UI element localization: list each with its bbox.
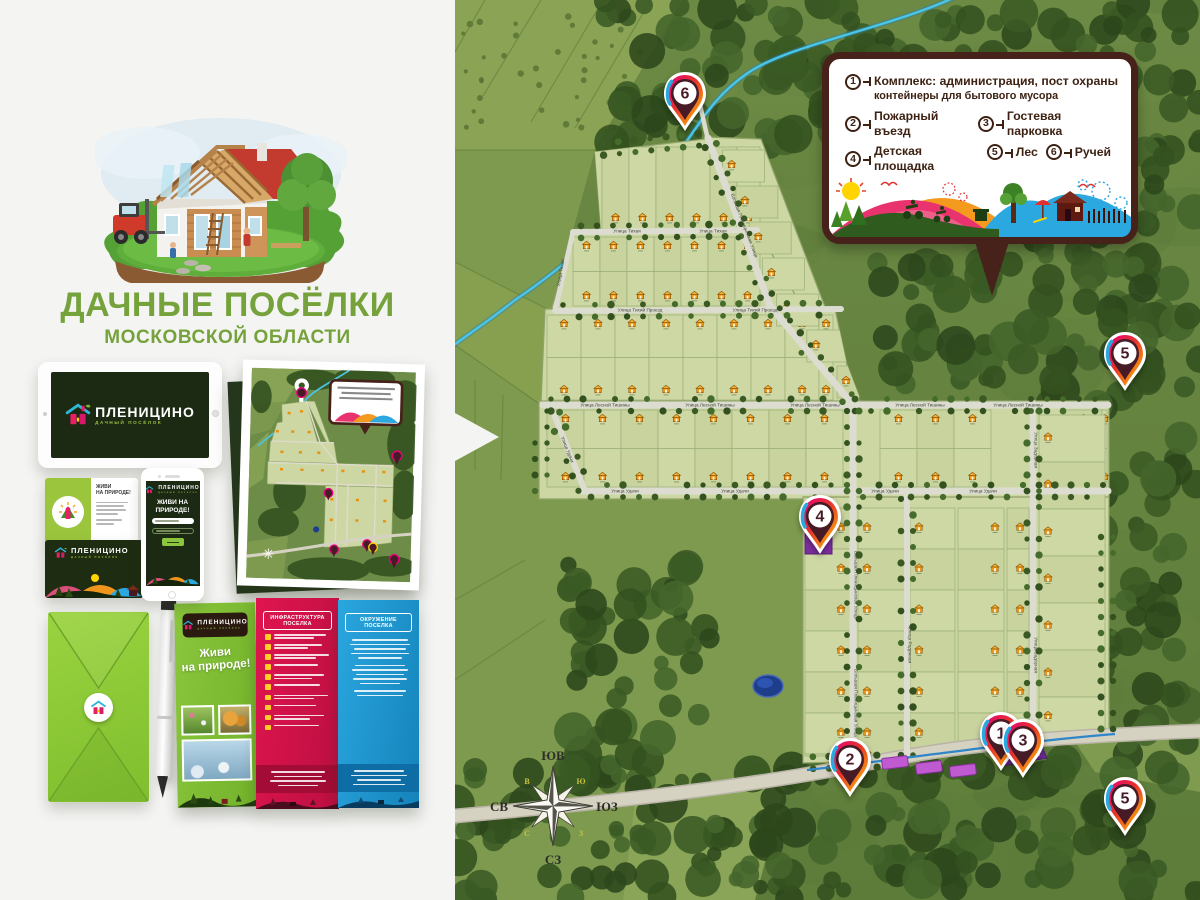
map-pin-5[interactable]: 5 bbox=[1102, 331, 1148, 393]
phone-submit-button bbox=[162, 538, 184, 546]
environment-footer bbox=[338, 764, 419, 792]
environment-title: ОКРУЖЕНИЕ ПОСЕЛКА bbox=[345, 613, 412, 632]
legend-label-6: Ручей bbox=[1075, 145, 1111, 160]
legend-connector-icon bbox=[996, 119, 1004, 130]
svg-text:Улица Задорная: Улица Задорная bbox=[1034, 432, 1039, 468]
legend-num-6: 6 bbox=[1046, 144, 1062, 160]
svg-text:ЮВ: ЮВ bbox=[541, 748, 565, 763]
pond-highlight bbox=[757, 678, 773, 688]
tablet-screen: ПЛЕНИЦИНО ДАЧНЫЙ ПОСЁЛОК bbox=[51, 372, 209, 458]
environment-text bbox=[348, 636, 411, 696]
brochure-landscape-art bbox=[338, 792, 419, 808]
pen-mockup bbox=[155, 608, 176, 778]
map-pin-6[interactable]: 6 bbox=[662, 71, 708, 133]
brochure-photo-forest bbox=[182, 738, 253, 781]
tablet-home-button bbox=[212, 410, 219, 417]
business-card-front: ЖИВИ НА ПРИРОДЕ! bbox=[45, 478, 138, 545]
legend-connector-icon bbox=[863, 155, 871, 166]
infrastructure-footer bbox=[256, 765, 339, 793]
phone-email-field bbox=[152, 518, 194, 525]
map-pin-4[interactable]: 4 bbox=[797, 494, 843, 556]
phone-slogan: ЖИВИ НА ПРИРОДЕ! bbox=[155, 499, 189, 515]
svg-text:2: 2 bbox=[846, 752, 855, 769]
legend-connector-icon bbox=[863, 119, 871, 130]
brand-house-icon bbox=[54, 547, 67, 559]
brochure-cover-panel: ПЛЕНИЦИНО ДАЧНЫЙ ПОСЁЛОК Живи на природе… bbox=[174, 602, 259, 807]
svg-text:Улица Лесной Тишины: Улица Лесной Тишины bbox=[993, 402, 1043, 408]
svg-text:С: С bbox=[524, 829, 530, 838]
brand-house-icon bbox=[90, 700, 107, 716]
title-line1: ДАЧНЫЕ ПОСЁЛКИ bbox=[0, 288, 455, 324]
house-construction-illustration bbox=[95, 103, 347, 291]
legend-label-1b: контейнеры для бытового мусора bbox=[874, 90, 1118, 103]
panel-arrow-notch bbox=[455, 413, 499, 461]
legend-num-2: 2 bbox=[845, 116, 861, 132]
infrastructure-list bbox=[265, 634, 332, 735]
phone-home-button bbox=[168, 591, 176, 599]
card-landscape-art bbox=[45, 568, 143, 598]
branding-panel: ДАЧНЫЕ ПОСЁЛКИ МОСКОВСКОЙ ОБЛАСТИ bbox=[0, 0, 455, 900]
card-green-half bbox=[45, 478, 91, 545]
svg-text:Улица Лесной Тишины: Улица Лесной Тишины bbox=[580, 402, 630, 408]
map-pin-5[interactable]: 5 bbox=[1102, 776, 1148, 838]
brochure-photo-mushrooms bbox=[218, 704, 252, 735]
legend-label-5: Лес bbox=[1016, 145, 1038, 160]
brand-house-icon bbox=[65, 403, 91, 427]
poster-mini-map bbox=[245, 368, 417, 583]
envelope-mockup bbox=[48, 612, 149, 802]
brand-logo-phone: ПЛЕНИЦИНО ДАЧНЫЙ ПОСЁЛОК bbox=[146, 486, 200, 495]
brochure-photo-meadow bbox=[181, 705, 215, 736]
svg-text:Улица Удачи: Улица Удачи bbox=[871, 489, 899, 494]
svg-text:Улица Лесной Тишины: Улица Лесной Тишины bbox=[685, 402, 735, 408]
svg-text:Большая Пленицынская Улица: Большая Пленицынская Улица bbox=[854, 551, 859, 619]
masterplan-poster bbox=[237, 360, 425, 591]
svg-text:В: В bbox=[524, 777, 530, 786]
svg-text:4: 4 bbox=[816, 509, 825, 526]
map-legend: 1 Комплекс: администрация, пост охраны к… bbox=[822, 52, 1138, 244]
title-line2: МОСКОВСКОЙ ОБЛАСТИ bbox=[0, 327, 455, 349]
envelope-sticker bbox=[84, 693, 113, 722]
svg-text:Улица Тихий Проезд: Улица Тихий Проезд bbox=[733, 307, 778, 313]
infrastructure-title: ИНФРАСТРУКТУРА ПОСЕЛКА bbox=[263, 611, 332, 630]
map-pin-2[interactable]: 2 bbox=[827, 737, 873, 799]
tablet-camera-icon bbox=[43, 412, 47, 416]
legend-num-4: 4 bbox=[845, 151, 861, 167]
card-emblem bbox=[52, 496, 84, 528]
tree-sun-icon bbox=[56, 500, 80, 524]
legend-label-4: Детская площадка bbox=[874, 144, 979, 175]
svg-text:Улица Лесной Тишины: Улица Лесной Тишины bbox=[895, 402, 945, 408]
legend-num-3: 3 bbox=[978, 116, 994, 132]
page-title: ДАЧНЫЕ ПОСЁЛКИ МОСКОВСКОЙ ОБЛАСТИ bbox=[0, 288, 455, 349]
phone-password-field bbox=[152, 528, 194, 535]
svg-text:СВ: СВ bbox=[490, 799, 508, 814]
legend-connector-icon bbox=[863, 76, 871, 87]
phone-speaker bbox=[165, 475, 180, 478]
card-info: ЖИВИ НА ПРИРОДЕ! bbox=[91, 478, 138, 545]
tablet-mockup: ПЛЕНИЦИНО ДАЧНЫЙ ПОСЁЛОК bbox=[38, 362, 222, 468]
brand-logo-small: ПЛЕНИЦИНО ДАЧНЫЙ ПОСЁЛОК bbox=[54, 547, 129, 559]
map-pin-3[interactable]: 3 bbox=[1000, 718, 1046, 780]
logo-tagline: ДАЧНЫЙ ПОСЁЛОК bbox=[95, 421, 195, 426]
brochure-slogan: Живи на природе! bbox=[174, 644, 257, 676]
brand-logo: ПЛЕНИЦИНО ДАЧНЫЙ ПОСЁЛОК bbox=[65, 403, 195, 427]
svg-text:Улица Тихая: Улица Тихая bbox=[613, 229, 641, 234]
svg-text:6: 6 bbox=[681, 86, 690, 103]
brochure-infrastructure-panel: ИНФРАСТРУКТУРА ПОСЕЛКА bbox=[256, 598, 339, 809]
phone-camera-icon bbox=[158, 475, 161, 478]
business-card-back: ПЛЕНИЦИНО ДАЧНЫЙ ПОСЁЛОК bbox=[45, 540, 143, 598]
legend-label-3: Гостевая парковка bbox=[1007, 109, 1111, 140]
brochure-mockup: ПЛЕНИЦИНО ДАЧНЫЙ ПОСЁЛОК Живи на природе… bbox=[176, 598, 421, 814]
brochure-logo-badge: ПЛЕНИЦИНО ДАЧНЫЙ ПОСЁЛОК bbox=[182, 612, 247, 637]
svg-text:З: З bbox=[579, 829, 583, 838]
legend-illustration bbox=[829, 177, 1131, 237]
legend-connector-icon bbox=[1064, 148, 1072, 159]
brand-house-icon bbox=[146, 486, 155, 494]
brand-house-icon bbox=[182, 620, 193, 630]
svg-text:5: 5 bbox=[1121, 346, 1130, 363]
legend-label-1: Комплекс: администрация, пост охраны bbox=[874, 74, 1118, 89]
legend-num-1: 1 bbox=[845, 74, 861, 90]
phone-mockup: ПЛЕНИЦИНО ДАЧНЫЙ ПОСЁЛОК ЖИВИ НА ПРИРОДЕ… bbox=[141, 468, 204, 601]
svg-text:Улица Удачи: Улица Удачи bbox=[611, 489, 639, 494]
svg-text:Ю: Ю bbox=[576, 777, 585, 786]
svg-text:Улица Лесной Тишины: Улица Лесной Тишины bbox=[790, 402, 840, 408]
masterplan-map: Улица Лесной ТишиныУлица Лесной ТишиныУл… bbox=[455, 0, 1200, 900]
brochure-landscape-art bbox=[256, 793, 339, 809]
svg-text:Улица Тихий Проезд: Улица Тихий Проезд bbox=[618, 307, 663, 313]
legend-label-2: Пожарный въезд bbox=[874, 109, 970, 140]
phone-landscape-art bbox=[146, 564, 200, 586]
card-headline-2: НА ПРИРОДЕ! bbox=[96, 490, 133, 496]
svg-text:Большая Пленицынская Улица: Большая Пленицынская Улица bbox=[854, 669, 859, 737]
page: ДАЧНЫЕ ПОСЁЛКИ МОСКОВСКОЙ ОБЛАСТИ bbox=[0, 0, 1200, 900]
brochure-environment-panel: ОКРУЖЕНИЕ ПОСЕЛКА bbox=[338, 600, 419, 808]
phone-screen: ПЛЕНИЦИНО ДАЧНЫЙ ПОСЁЛОК ЖИВИ НА ПРИРОДЕ… bbox=[146, 481, 200, 586]
svg-text:СЗ: СЗ bbox=[545, 852, 561, 867]
legend-num-5: 5 bbox=[987, 144, 1003, 160]
svg-text:Улица Радужная: Улица Радужная bbox=[908, 627, 913, 664]
svg-text:5: 5 bbox=[1121, 791, 1130, 808]
svg-text:Улица Задорная: Улица Задорная bbox=[1034, 637, 1039, 673]
svg-text:ЮЗ: ЮЗ bbox=[596, 799, 618, 814]
svg-text:Улица Тихая: Улица Тихая bbox=[699, 229, 727, 234]
svg-text:Улица Удачи: Улица Удачи bbox=[721, 489, 749, 494]
brochure-landscape-art bbox=[177, 786, 258, 807]
svg-text:3: 3 bbox=[1019, 733, 1028, 750]
logo-name: ПЛЕНИЦИНО bbox=[95, 405, 195, 419]
svg-text:Улица Удачи: Улица Удачи bbox=[969, 489, 997, 494]
legend-connector-icon bbox=[1005, 148, 1013, 159]
